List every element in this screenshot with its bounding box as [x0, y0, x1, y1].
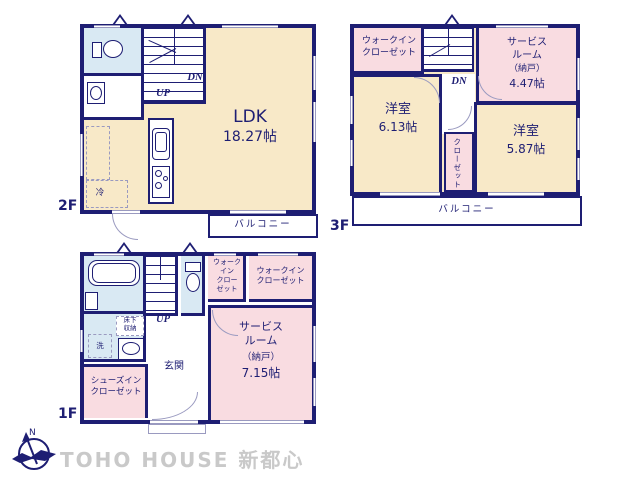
entrance-porch-step [148, 424, 206, 434]
gable-vent-icon [185, 245, 195, 252]
stair-post-line [448, 28, 449, 56]
bedroom1-name: 洋室 [362, 102, 434, 119]
staircase-3f [424, 28, 474, 72]
window [577, 118, 580, 150]
balcony-door [230, 210, 286, 214]
service-1f-note: （納戸） [214, 352, 308, 364]
ldk-room-label: LDK 18.27帖 [190, 106, 310, 172]
dn-label-3f: DN [444, 76, 474, 87]
sink-basin-icon [90, 86, 102, 100]
bedroom1-size: 6.13帖 [362, 120, 434, 136]
window [577, 158, 580, 180]
shoes-closet-label: シューズイン クローゼット [85, 376, 147, 398]
ldk-name: LDK [190, 106, 310, 128]
window [350, 140, 353, 166]
service-3f-size: 4.47帖 [482, 77, 572, 91]
window [222, 25, 278, 28]
gable-vent-icon [119, 245, 129, 252]
door-arc [112, 214, 138, 240]
toilet-tank-icon [185, 262, 201, 272]
window [313, 102, 316, 142]
entrance-label: 玄関 [152, 360, 196, 373]
dn-label-2f: DN [180, 72, 210, 83]
closet-3f-label: クローゼット [452, 137, 462, 189]
window [80, 330, 83, 352]
staircase-1f [146, 256, 178, 316]
service-1f-size: 7.15帖 [214, 366, 308, 382]
service-3f-note: （納戸） [482, 64, 572, 76]
bathtub-inner [92, 263, 136, 283]
service-1f-name: サービス ルーム [214, 320, 308, 349]
window [258, 253, 298, 256]
wic-small-label: ウォーク イン クロー ゼット [209, 258, 245, 294]
washer-label: 洗 [88, 341, 112, 351]
toilet-bowl-icon [103, 40, 123, 58]
bath-counter-icon [85, 292, 98, 310]
gable-vent-icon [447, 17, 457, 24]
service-3f-name: サービス ルーム [482, 36, 572, 62]
window [350, 96, 353, 124]
refrigerator-space [86, 126, 110, 180]
wic-3f-label: ウォークイン クローゼット [354, 36, 424, 59]
burner-icon [155, 182, 162, 189]
compass-icon: N [8, 426, 60, 478]
floor-label-2f: 2F [58, 198, 77, 214]
window [220, 420, 304, 424]
stair-post-line [174, 28, 175, 64]
balcony-door [380, 192, 440, 196]
gable-vent-icon [115, 17, 125, 24]
window [214, 253, 236, 256]
toilet-bowl-icon [186, 273, 200, 292]
fridge-label: 冷 [90, 188, 110, 199]
ldk-size: 18.27帖 [190, 128, 310, 146]
kitchen-sink-basin [155, 132, 167, 152]
window [94, 25, 120, 28]
vanity-basin-icon [122, 342, 140, 355]
balcony-label-3f: バルコニー [352, 204, 582, 216]
balcony-door [488, 192, 544, 196]
gable-vent-icon [183, 17, 193, 24]
up-label-2f: UP [146, 88, 180, 99]
floorplan-image: UP DN LDK 18.27帖 冷 バルコニー 2F ウォークイン クローゼッ… [0, 0, 640, 480]
floor-label-3f: 3F [330, 218, 349, 234]
window [577, 58, 580, 90]
balcony-label-2f: バルコニー [208, 219, 318, 231]
window [94, 253, 124, 256]
compass-north-label: N [29, 428, 36, 438]
underfloor-storage-label: 床下 収納 [116, 317, 144, 333]
floor-label-1f: 1F [58, 406, 77, 422]
bedroom2-name: 洋室 [480, 124, 572, 141]
window [313, 326, 316, 362]
window [80, 134, 83, 176]
window [313, 56, 316, 90]
toilet-tank-icon [92, 42, 102, 58]
up-label-1f: UP [146, 314, 180, 325]
burner-icon [155, 170, 162, 177]
watermark-text: TOHO HOUSE 新都心 [60, 444, 304, 473]
burner-icon [163, 176, 168, 181]
window [313, 378, 316, 406]
bedroom2-size: 5.87帖 [480, 142, 572, 158]
entrance-door-opening [150, 420, 198, 424]
stair-post-line [160, 256, 161, 280]
window [496, 25, 548, 28]
wic-large-label: ウォークイン クローゼット [250, 266, 311, 287]
